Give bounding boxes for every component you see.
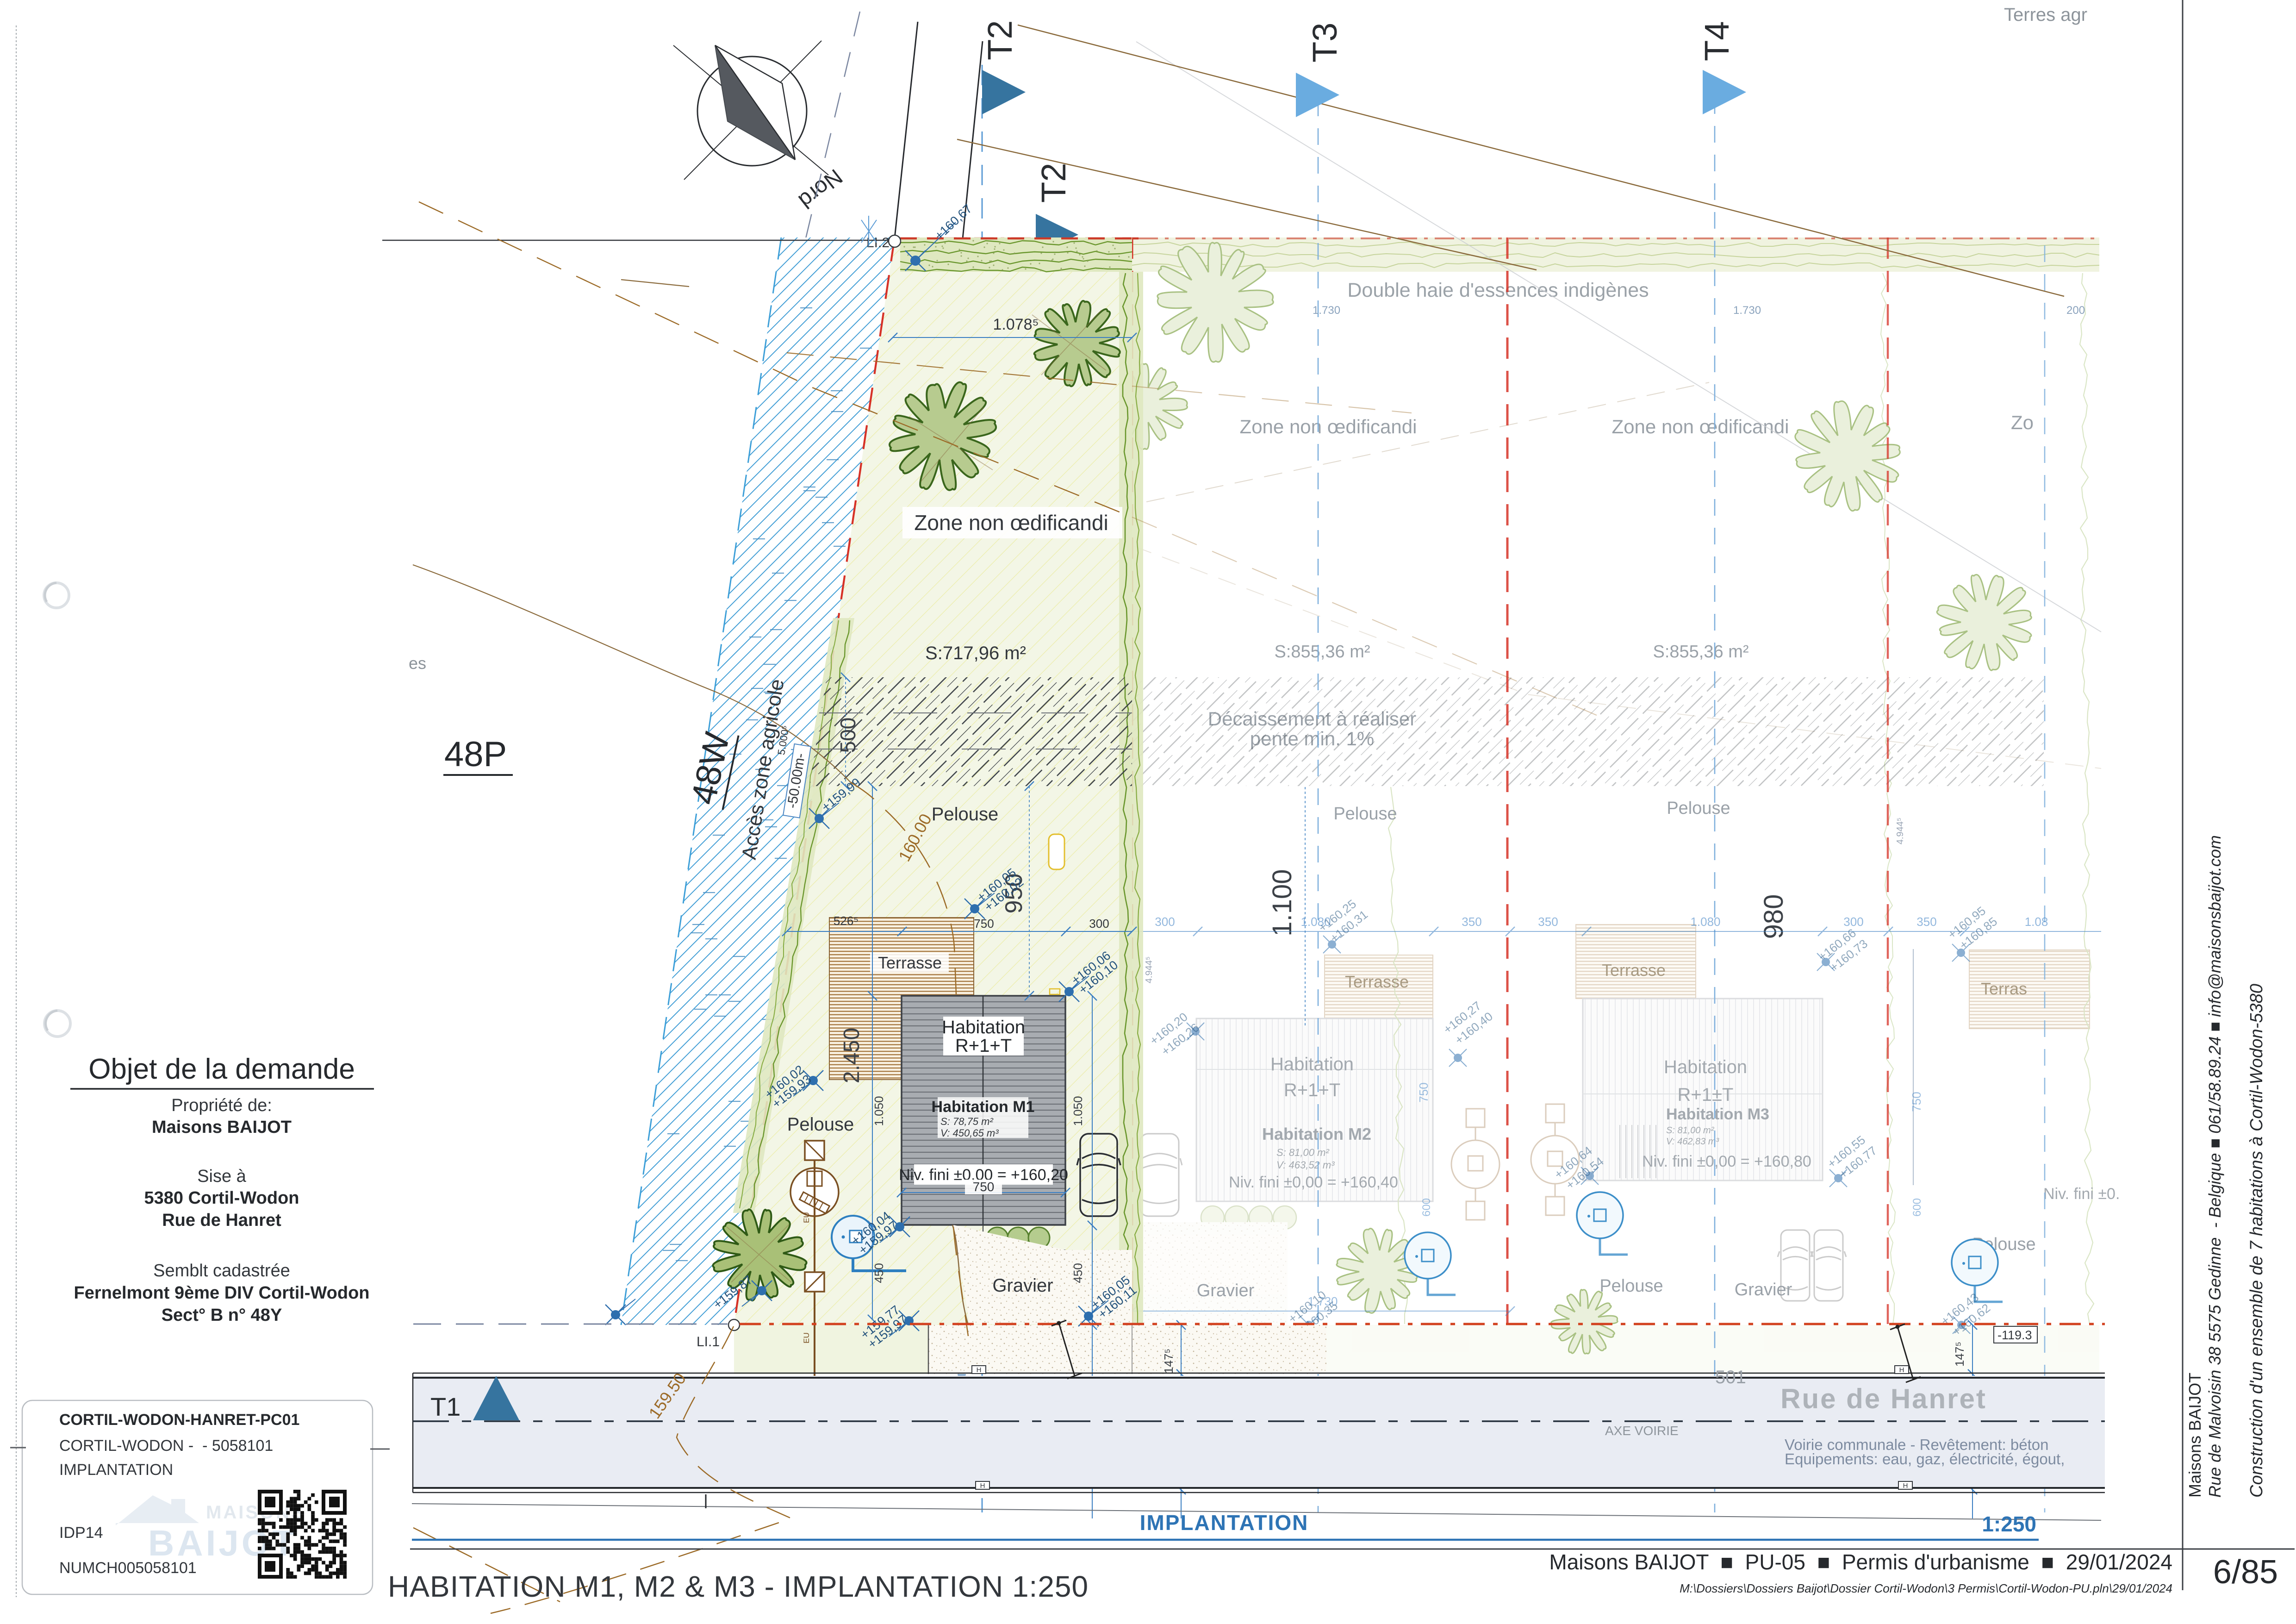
svg-text:AXE VOIRIE: AXE VOIRIE xyxy=(1605,1424,1679,1438)
svg-text:T2: T2 xyxy=(1034,163,1073,203)
svg-text:T2: T2 xyxy=(981,20,1019,60)
svg-text:R+1±T: R+1±T xyxy=(1678,1085,1734,1105)
svg-text:501: 501 xyxy=(1715,1367,1746,1387)
svg-text:-119.3: -119.3 xyxy=(1997,1328,2032,1342)
svg-text:Terrasse: Terrasse xyxy=(1602,961,1666,980)
svg-text:Habitation M2: Habitation M2 xyxy=(1262,1124,1371,1143)
svg-text:Zone non œdificandi: Zone non œdificandi xyxy=(1612,416,1789,437)
svg-text:Zone non œdificandi: Zone non œdificandi xyxy=(1240,416,1417,437)
svg-text:S:855,36 m²: S:855,36 m² xyxy=(1653,642,1749,662)
svg-text:Terres agr: Terres agr xyxy=(2004,5,2087,25)
svg-text:Habitation: Habitation xyxy=(1270,1054,1354,1074)
svg-text:300: 300 xyxy=(1843,915,1863,929)
svg-text:Equipements: eau, gaz, électri: Equipements: eau, gaz, électricité, égou… xyxy=(1785,1450,2065,1468)
svg-text:H: H xyxy=(980,1482,985,1490)
svg-text:300: 300 xyxy=(1089,917,1109,931)
svg-text:LI.2: LI.2 xyxy=(866,235,890,250)
svg-text:CORTIL-WODON - - 5058101: CORTIL-WODON - - 5058101 xyxy=(59,1437,273,1455)
svg-text:Maisons BAIJOT ■ PU-05 ■ P: Maisons BAIJOT ■ PU-05 ■ Permis d'urbani… xyxy=(1549,1550,2172,1574)
svg-text:Rue de Malvoisin 38 5575 Gedin: Rue de Malvoisin 38 5575 Gedinne - Belgi… xyxy=(2205,835,2224,1498)
svg-text:H: H xyxy=(1903,1482,1908,1490)
svg-text:T1: T1 xyxy=(430,1392,460,1421)
svg-text:Sect° B n° 48Y: Sect° B n° 48Y xyxy=(162,1305,282,1325)
svg-text:CORTIL-WODON-HANRET-PC01: CORTIL-WODON-HANRET-PC01 xyxy=(59,1411,299,1429)
svg-text:H: H xyxy=(1899,1366,1904,1374)
svg-text:6/85: 6/85 xyxy=(2213,1554,2278,1591)
svg-text:Niv. fini ±0,00 = +160,40: Niv. fini ±0,00 = +160,40 xyxy=(1229,1174,1398,1191)
svg-text:1.730: 1.730 xyxy=(1313,304,1340,317)
svg-text:200: 200 xyxy=(2066,304,2085,317)
svg-text:Terrasse: Terrasse xyxy=(1345,972,1409,991)
svg-text:980: 980 xyxy=(1759,894,1789,939)
svg-text:IMPLANTATION: IMPLANTATION xyxy=(1140,1511,1309,1535)
svg-text:Gravier: Gravier xyxy=(1197,1281,1255,1300)
svg-text:1.080: 1.080 xyxy=(1690,915,1720,929)
svg-text:300: 300 xyxy=(1155,915,1175,929)
svg-text:1.100: 1.100 xyxy=(1267,869,1297,936)
svg-text:T4: T4 xyxy=(1698,21,1736,61)
svg-text:Habitation: Habitation xyxy=(942,1017,1025,1037)
svg-text:1.08: 1.08 xyxy=(2025,915,2048,929)
svg-text:Pelouse: Pelouse xyxy=(932,804,999,824)
svg-text:1.050: 1.050 xyxy=(872,1096,886,1126)
svg-text:V: 462,83 m³: V: 462,83 m³ xyxy=(1666,1137,1719,1147)
svg-text:1.730: 1.730 xyxy=(1733,304,1761,317)
svg-text:450: 450 xyxy=(1071,1263,1085,1283)
svg-text:Maisons BAIJOT: Maisons BAIJOT xyxy=(2185,1373,2204,1498)
svg-text:Zone non œdificandi: Zone non œdificandi xyxy=(914,511,1108,535)
svg-text:1.078⁵: 1.078⁵ xyxy=(993,316,1039,333)
svg-text:IMPLANTATION: IMPLANTATION xyxy=(59,1461,173,1479)
svg-text:1.050: 1.050 xyxy=(1071,1096,1085,1126)
svg-text:Gravier: Gravier xyxy=(1735,1280,1792,1299)
svg-text:Construction d'un ensemble de: Construction d'un ensemble de 7 habitati… xyxy=(2247,984,2266,1498)
svg-text:526⁵: 526⁵ xyxy=(834,914,859,928)
svg-text:es: es xyxy=(409,654,426,673)
svg-text:5380 Cortil-Wodon: 5380 Cortil-Wodon xyxy=(144,1188,299,1208)
svg-text:V: 463,52 m³: V: 463,52 m³ xyxy=(1276,1159,1335,1171)
svg-text:Objet de la demande: Objet de la demande xyxy=(88,1053,355,1085)
svg-text:Zo: Zo xyxy=(2011,412,2034,433)
svg-text:750: 750 xyxy=(1417,1082,1431,1102)
svg-text:Semblt cadastrée: Semblt cadastrée xyxy=(153,1261,290,1280)
svg-text:4.944⁵: 4.944⁵ xyxy=(1144,956,1154,983)
svg-text:Niv. fini ±0,00 = +160,80: Niv. fini ±0,00 = +160,80 xyxy=(1642,1153,1811,1170)
svg-text:450: 450 xyxy=(872,1263,886,1283)
svg-text:Habitation: Habitation xyxy=(1664,1057,1747,1077)
svg-text:LI.1: LI.1 xyxy=(697,1334,720,1349)
svg-text:350: 350 xyxy=(1916,915,1936,929)
svg-text:1:250: 1:250 xyxy=(1982,1512,2036,1536)
svg-text:Terrasse: Terrasse xyxy=(878,953,942,972)
svg-text:Double haie d'essences indigèn: Double haie d'essences indigènes xyxy=(1347,279,1649,301)
svg-text:EU: EU xyxy=(802,1332,811,1343)
svg-text:S: 81,00 m²: S: 81,00 m² xyxy=(1276,1147,1329,1158)
svg-text:EU: EU xyxy=(802,1212,811,1223)
svg-text:HABITATION M1, M2 & M3 - IMPLA: HABITATION M1, M2 & M3 - IMPLANTATION 1:… xyxy=(388,1570,1089,1603)
svg-text:R+1+T: R+1+T xyxy=(1284,1080,1340,1100)
svg-text:500: 500 xyxy=(836,718,860,753)
svg-text:Pelouse: Pelouse xyxy=(1599,1276,1663,1296)
svg-text:48P: 48P xyxy=(444,735,507,774)
svg-text:750: 750 xyxy=(973,1180,995,1194)
svg-text:Rue de Hanret: Rue de Hanret xyxy=(162,1211,281,1230)
svg-text:Terras: Terras xyxy=(1981,979,2027,998)
svg-text:R+1+T: R+1+T xyxy=(955,1036,1012,1056)
svg-text:4.944⁵: 4.944⁵ xyxy=(1895,818,1905,844)
svg-text:Rue de Hanret: Rue de Hanret xyxy=(1780,1383,1987,1414)
svg-text:T3: T3 xyxy=(1306,23,1344,62)
svg-text:Sise à: Sise à xyxy=(197,1167,246,1186)
svg-text:NUMCH005058101: NUMCH005058101 xyxy=(59,1559,197,1577)
svg-text:S:855,36 m²: S:855,36 m² xyxy=(1275,642,1370,662)
svg-text:350: 350 xyxy=(1538,915,1558,929)
svg-text:Maisons BAIJOT: Maisons BAIJOT xyxy=(152,1118,292,1137)
svg-text:350: 350 xyxy=(1462,915,1481,929)
svg-text:Habitation M1: Habitation M1 xyxy=(932,1098,1035,1116)
svg-text:147⁵: 147⁵ xyxy=(1953,1342,1966,1367)
svg-text:S: 81,00 m²: S: 81,00 m² xyxy=(1666,1125,1715,1136)
svg-text:Pelouse: Pelouse xyxy=(1333,804,1397,824)
svg-text:IDP14: IDP14 xyxy=(59,1524,103,1542)
svg-text:2.450: 2.450 xyxy=(840,1028,864,1083)
svg-text:S: 78,75 m²: S: 78,75 m² xyxy=(940,1116,993,1127)
svg-text:750: 750 xyxy=(1910,1092,1923,1112)
svg-text:Fernelmont 9ème DIV Cortil-Wod: Fernelmont 9ème DIV Cortil-Wodon xyxy=(74,1283,369,1303)
svg-text:V: 450,65 m³: V: 450,65 m³ xyxy=(940,1127,999,1139)
svg-text:S:717,96 m²: S:717,96 m² xyxy=(925,643,1026,663)
svg-text:Pelouse: Pelouse xyxy=(1667,799,1730,818)
svg-text:Pelouse: Pelouse xyxy=(787,1114,854,1135)
svg-text:M:\Dossiers\Dossiers Baijot\Do: M:\Dossiers\Dossiers Baijot\Dossier Cort… xyxy=(1680,1581,2172,1595)
svg-text:H: H xyxy=(977,1366,982,1374)
svg-text:Gravier: Gravier xyxy=(992,1275,1053,1296)
svg-text:600: 600 xyxy=(1420,1198,1433,1217)
svg-text:Propriété de:: Propriété de: xyxy=(171,1096,272,1115)
svg-text:Habitation M3: Habitation M3 xyxy=(1666,1106,1769,1123)
svg-text:Niv. fini ±0.: Niv. fini ±0. xyxy=(2043,1185,2120,1203)
svg-text:147⁵: 147⁵ xyxy=(1162,1349,1176,1374)
svg-text:600: 600 xyxy=(1911,1198,1923,1217)
